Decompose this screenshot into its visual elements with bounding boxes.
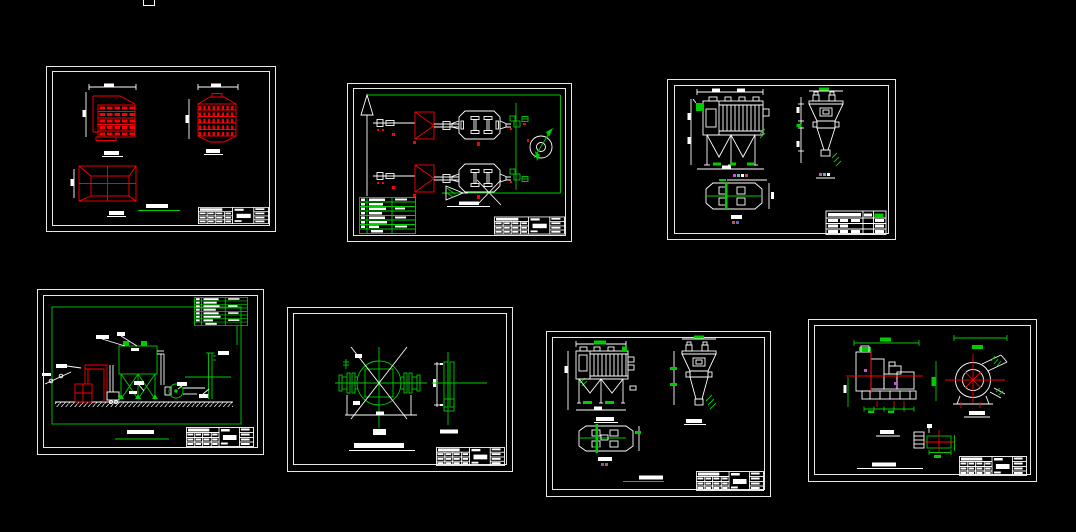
valve-front-view — [335, 347, 427, 451]
title-block — [436, 447, 504, 465]
detail-view — [914, 424, 955, 458]
cad-model-space — [0, 0, 1076, 532]
sheet-6-canvas — [546, 331, 771, 497]
title-block — [826, 211, 886, 235]
title-block — [186, 428, 253, 447]
ground-line — [55, 402, 233, 407]
furnace-and-duct — [75, 365, 107, 402]
sheet-7-fan-views[interactable] — [808, 319, 1037, 482]
section-view — [83, 84, 137, 157]
plan-view — [706, 182, 774, 224]
transition-duct-view — [71, 166, 137, 217]
side-view — [670, 336, 716, 425]
front-view — [688, 89, 770, 182]
sheet-title — [115, 430, 169, 439]
side-view — [797, 88, 844, 179]
sheet-2-canvas — [347, 83, 572, 242]
fan-symbol — [527, 128, 553, 161]
sheet-4-canvas — [37, 289, 264, 455]
sheet-title — [857, 463, 923, 469]
title-block — [959, 457, 1026, 476]
front-view — [565, 341, 637, 423]
title-block — [495, 217, 565, 234]
drum-front-view — [186, 84, 239, 155]
sheet-3-canvas — [667, 79, 896, 240]
sheet-title — [623, 476, 664, 482]
baghouse-structure — [118, 341, 158, 399]
sheet-1-canvas — [46, 66, 276, 232]
sheet-7-canvas — [808, 319, 1037, 482]
sheet-5-canvas — [287, 307, 513, 472]
flow-frame — [367, 95, 561, 193]
title-block — [199, 207, 269, 223]
title-block — [696, 472, 763, 491]
sheet-4-elevation-layout[interactable] — [37, 289, 264, 455]
valve-side-view — [432, 352, 487, 434]
sheet-3-bag-filter-views[interactable] — [667, 79, 896, 240]
stack-symbol — [361, 95, 373, 196]
legend-table — [194, 297, 247, 325]
stack — [185, 351, 231, 399]
sheet-note — [138, 204, 180, 211]
process-line-2 — [373, 164, 528, 199]
sheet-6-bag-filter-views[interactable] — [546, 331, 771, 497]
plan-view — [579, 424, 641, 466]
process-line-1 — [373, 111, 528, 146]
drop-duct-feeder — [107, 365, 119, 404]
feed-conveyor — [42, 372, 71, 384]
clipped-entity-box — [143, 0, 155, 6]
sheet-2-flow-diagram[interactable] — [347, 83, 572, 242]
sheet-1-part-drawing[interactable] — [46, 66, 276, 232]
sheet-5-valve-views[interactable] — [287, 307, 513, 472]
fan-front-view — [932, 335, 1008, 417]
legend-table — [360, 198, 416, 234]
sheet-border — [809, 320, 1037, 482]
fan-and-outlet — [157, 351, 205, 398]
fan-side-view — [844, 338, 924, 437]
